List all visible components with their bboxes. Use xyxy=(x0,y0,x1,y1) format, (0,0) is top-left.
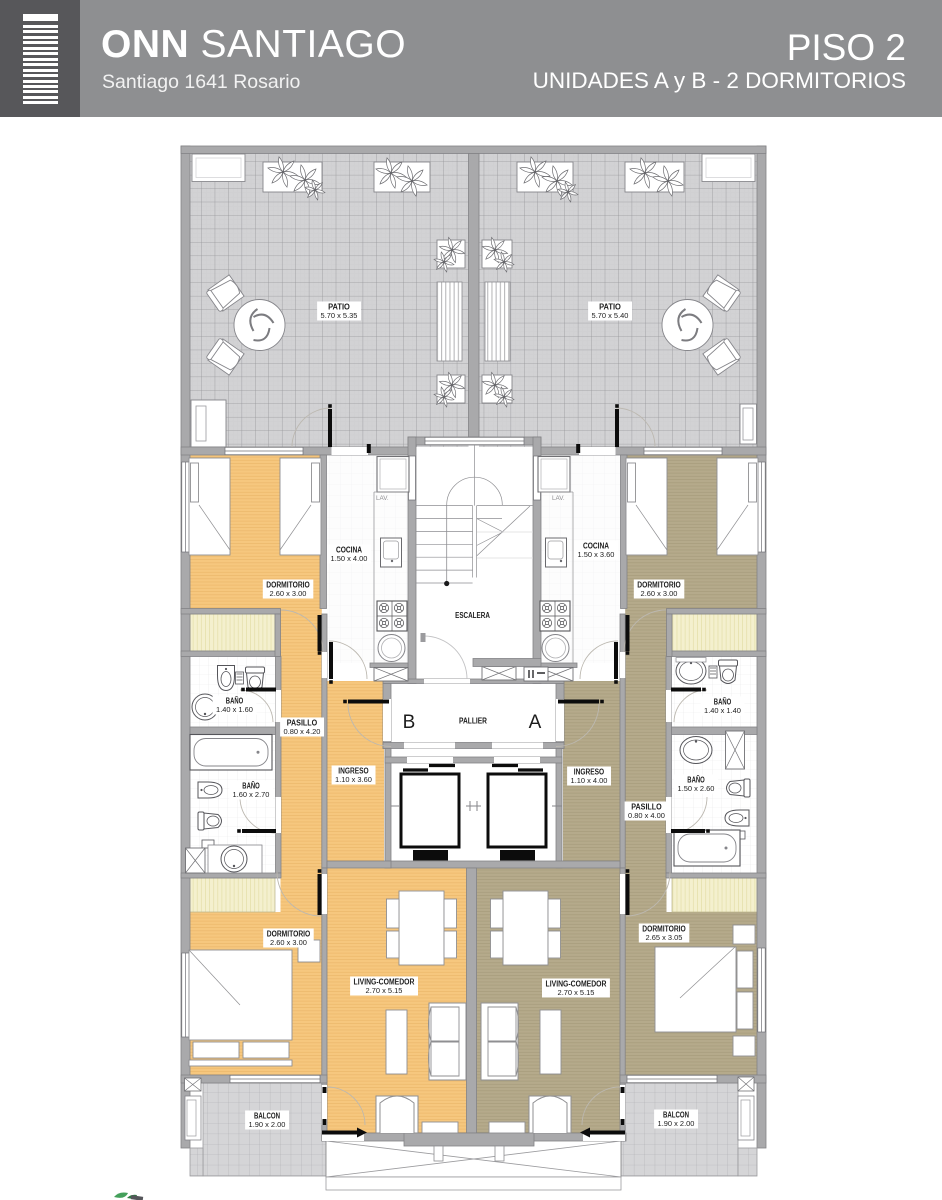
svg-text:2.70 x 5.15: 2.70 x 5.15 xyxy=(366,986,403,995)
svg-text:COCINA: COCINA xyxy=(336,545,362,554)
svg-text:LIVING-COMEDOR: LIVING-COMEDOR xyxy=(354,977,415,986)
svg-text:2.65 x 3.05: 2.65 x 3.05 xyxy=(646,933,683,942)
svg-text:2.60 x 3.00: 2.60 x 3.00 xyxy=(270,589,307,598)
svg-text:B: B xyxy=(403,712,416,733)
svg-text:PALLIER: PALLIER xyxy=(459,717,487,726)
svg-text:DORMITORIO: DORMITORIO xyxy=(637,580,681,589)
svg-text:BAÑO: BAÑO xyxy=(242,781,259,790)
svg-text:INGRESO: INGRESO xyxy=(338,766,368,775)
svg-text:BALCON: BALCON xyxy=(663,1110,689,1119)
svg-text:5.70 x 5.40: 5.70 x 5.40 xyxy=(592,311,629,320)
svg-text:1.90 x 2.00: 1.90 x 2.00 xyxy=(249,1120,286,1129)
svg-text:PATIO: PATIO xyxy=(599,302,621,311)
svg-text:1.40 x 1.60: 1.40 x 1.60 xyxy=(216,705,253,714)
svg-text:LAV.: LAV. xyxy=(376,495,389,502)
svg-text:0.80 x 4.00: 0.80 x 4.00 xyxy=(628,811,665,820)
svg-text:1.50 x 2.60: 1.50 x 2.60 xyxy=(678,784,715,793)
svg-text:PASILLO: PASILLO xyxy=(631,802,661,811)
svg-text:LIVING-COMEDOR: LIVING-COMEDOR xyxy=(546,979,607,988)
svg-text:0.80 x 4.20: 0.80 x 4.20 xyxy=(284,727,321,736)
svg-text:ESCALERA: ESCALERA xyxy=(455,611,490,620)
svg-text:DORMITORIO: DORMITORIO xyxy=(267,929,311,938)
svg-text:INGRESO: INGRESO xyxy=(574,767,604,776)
svg-text:A: A xyxy=(529,712,542,733)
svg-text:BAÑO: BAÑO xyxy=(714,697,731,706)
svg-text:COCINA: COCINA xyxy=(583,541,609,550)
svg-text:BAÑO: BAÑO xyxy=(687,775,704,784)
svg-text:1.90 x 2.00: 1.90 x 2.00 xyxy=(658,1119,695,1128)
svg-text:BAÑO: BAÑO xyxy=(226,696,243,705)
svg-text:2.60 x 3.00: 2.60 x 3.00 xyxy=(641,589,678,598)
svg-text:2.70 x 5.15: 2.70 x 5.15 xyxy=(558,988,595,997)
svg-text:BALCON: BALCON xyxy=(254,1111,280,1120)
svg-text:PASILLO: PASILLO xyxy=(287,718,317,727)
svg-text:LAV.: LAV. xyxy=(552,495,565,502)
svg-text:1.60 x 2.70: 1.60 x 2.70 xyxy=(233,790,270,799)
svg-text:1.10 x 3.60: 1.10 x 3.60 xyxy=(335,775,372,784)
svg-text:2.60 x 3.00: 2.60 x 3.00 xyxy=(270,938,307,947)
svg-text:1.10 x 4.00: 1.10 x 4.00 xyxy=(571,776,608,785)
svg-text:1.50 x 3.60: 1.50 x 3.60 xyxy=(578,550,615,559)
svg-text:DORMITORIO: DORMITORIO xyxy=(642,924,686,933)
svg-text:5.70 x 5.35: 5.70 x 5.35 xyxy=(321,311,358,320)
svg-text:DORMITORIO: DORMITORIO xyxy=(266,580,310,589)
svg-text:1.40 x 1.40: 1.40 x 1.40 xyxy=(704,706,741,715)
svg-text:1.50 x 4.00: 1.50 x 4.00 xyxy=(331,554,368,563)
svg-text:PATIO: PATIO xyxy=(328,302,350,311)
